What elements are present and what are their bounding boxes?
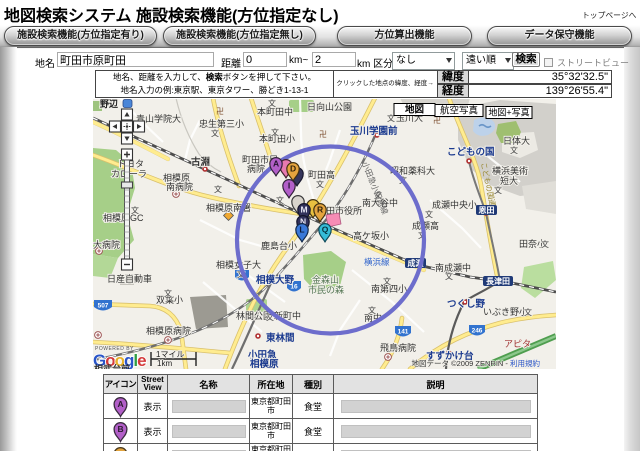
svg-text:文: 文 <box>271 127 279 137</box>
svg-text:D: D <box>290 164 296 174</box>
svg-text:A: A <box>117 399 123 409</box>
svg-text:日体大: 日体大 <box>503 135 530 146</box>
svg-text:横浜線: 横浜線 <box>364 257 390 267</box>
svg-text:B: B <box>117 424 123 434</box>
svg-text:1km: 1km <box>157 359 172 368</box>
svg-text:文: 文 <box>368 305 376 315</box>
svg-text:日産自動車: 日産自動車 <box>107 273 152 284</box>
svg-text:南病院: 南病院 <box>166 181 193 192</box>
svg-text:文: 文 <box>214 184 222 194</box>
svg-text:I: I <box>288 181 290 191</box>
svg-text:飛鳥病院: 飛鳥病院 <box>380 342 416 353</box>
svg-text:文: 文 <box>510 145 518 155</box>
svg-text:成瀬中央小: 成瀬中央小 <box>432 199 477 210</box>
svg-text:文: 文 <box>541 239 549 249</box>
svg-text:Q: Q <box>322 225 329 235</box>
svg-text:L: L <box>299 225 304 235</box>
svg-text:短大: 短大 <box>500 175 518 186</box>
svg-text:南成瀬中: 南成瀬中 <box>435 262 471 273</box>
svg-text:141: 141 <box>398 329 409 336</box>
svg-text:大病院: 大病院 <box>93 239 120 250</box>
svg-text:地図データ ©2009 ZENRIN - 利用規約: 地図データ ©2009 ZENRIN - 利用規約 <box>412 358 541 368</box>
svg-text:246: 246 <box>472 328 483 335</box>
svg-text:航空写真: 航空写真 <box>440 105 479 117</box>
svg-text:市民の森: 市民の森 <box>308 284 344 295</box>
svg-text:相模原病院: 相模原病院 <box>146 325 191 336</box>
svg-text:卍: 卍 <box>433 116 441 125</box>
svg-text:相武台前: 相武台前 <box>94 363 130 369</box>
svg-text:恩田: 恩田 <box>479 206 495 215</box>
svg-text:A: A <box>273 159 279 169</box>
svg-text:金森山: 金森山 <box>312 274 339 285</box>
svg-text:町田高: 町田高 <box>308 169 335 180</box>
svg-text:相模大野: 相模大野 <box>256 274 295 286</box>
svg-text:日向山公園: 日向山公園 <box>307 101 352 112</box>
svg-text:文: 文 <box>211 128 219 138</box>
svg-text:地図+写真: 地図+写真 <box>488 107 529 118</box>
svg-text:成瀬高: 成瀬高 <box>412 220 439 231</box>
svg-text:文: 文 <box>383 276 391 286</box>
svg-text:文: 文 <box>268 99 276 108</box>
svg-text:地図: 地図 <box>405 104 424 116</box>
svg-text:文: 文 <box>316 179 324 189</box>
svg-text:卍: 卍 <box>319 130 327 139</box>
svg-text:古淵: 古淵 <box>191 156 210 168</box>
svg-text:アピタ: アピタ <box>504 339 531 349</box>
svg-text:鹿島台小: 鹿島台小 <box>261 240 297 251</box>
svg-text:R: R <box>317 205 323 215</box>
svg-text:高ケ坂小: 高ケ坂小 <box>353 230 389 241</box>
svg-text:こどもの国: こどもの国 <box>447 146 495 158</box>
svg-text:M: M <box>300 205 307 215</box>
svg-text:つくし野: つくし野 <box>447 299 486 310</box>
svg-text:野辺: 野辺 <box>100 99 119 109</box>
svg-text:相模原: 相模原 <box>250 358 279 369</box>
svg-text:507: 507 <box>98 303 109 310</box>
svg-text:いぶき野小: いぶき野小 <box>483 307 528 317</box>
svg-text:文: 文 <box>276 195 284 205</box>
svg-text:文: 文 <box>164 288 172 298</box>
svg-text:文: 文 <box>425 209 433 219</box>
svg-text:病院: 病院 <box>247 164 265 174</box>
svg-text:文: 文 <box>524 307 532 317</box>
svg-text:卍: 卍 <box>216 107 224 116</box>
svg-text:長津田: 長津田 <box>486 276 510 286</box>
svg-text:忠生第三小: 忠生第三小 <box>199 118 244 129</box>
svg-text:1マイル: 1マイル <box>156 350 184 359</box>
svg-text:文: 文 <box>131 205 139 215</box>
svg-text:横浜美術: 横浜美術 <box>492 165 528 176</box>
svg-text:文: 文 <box>445 271 453 281</box>
svg-text:東林間: 東林間 <box>265 332 295 344</box>
svg-text:玉川学園前: 玉川学園前 <box>350 125 398 137</box>
